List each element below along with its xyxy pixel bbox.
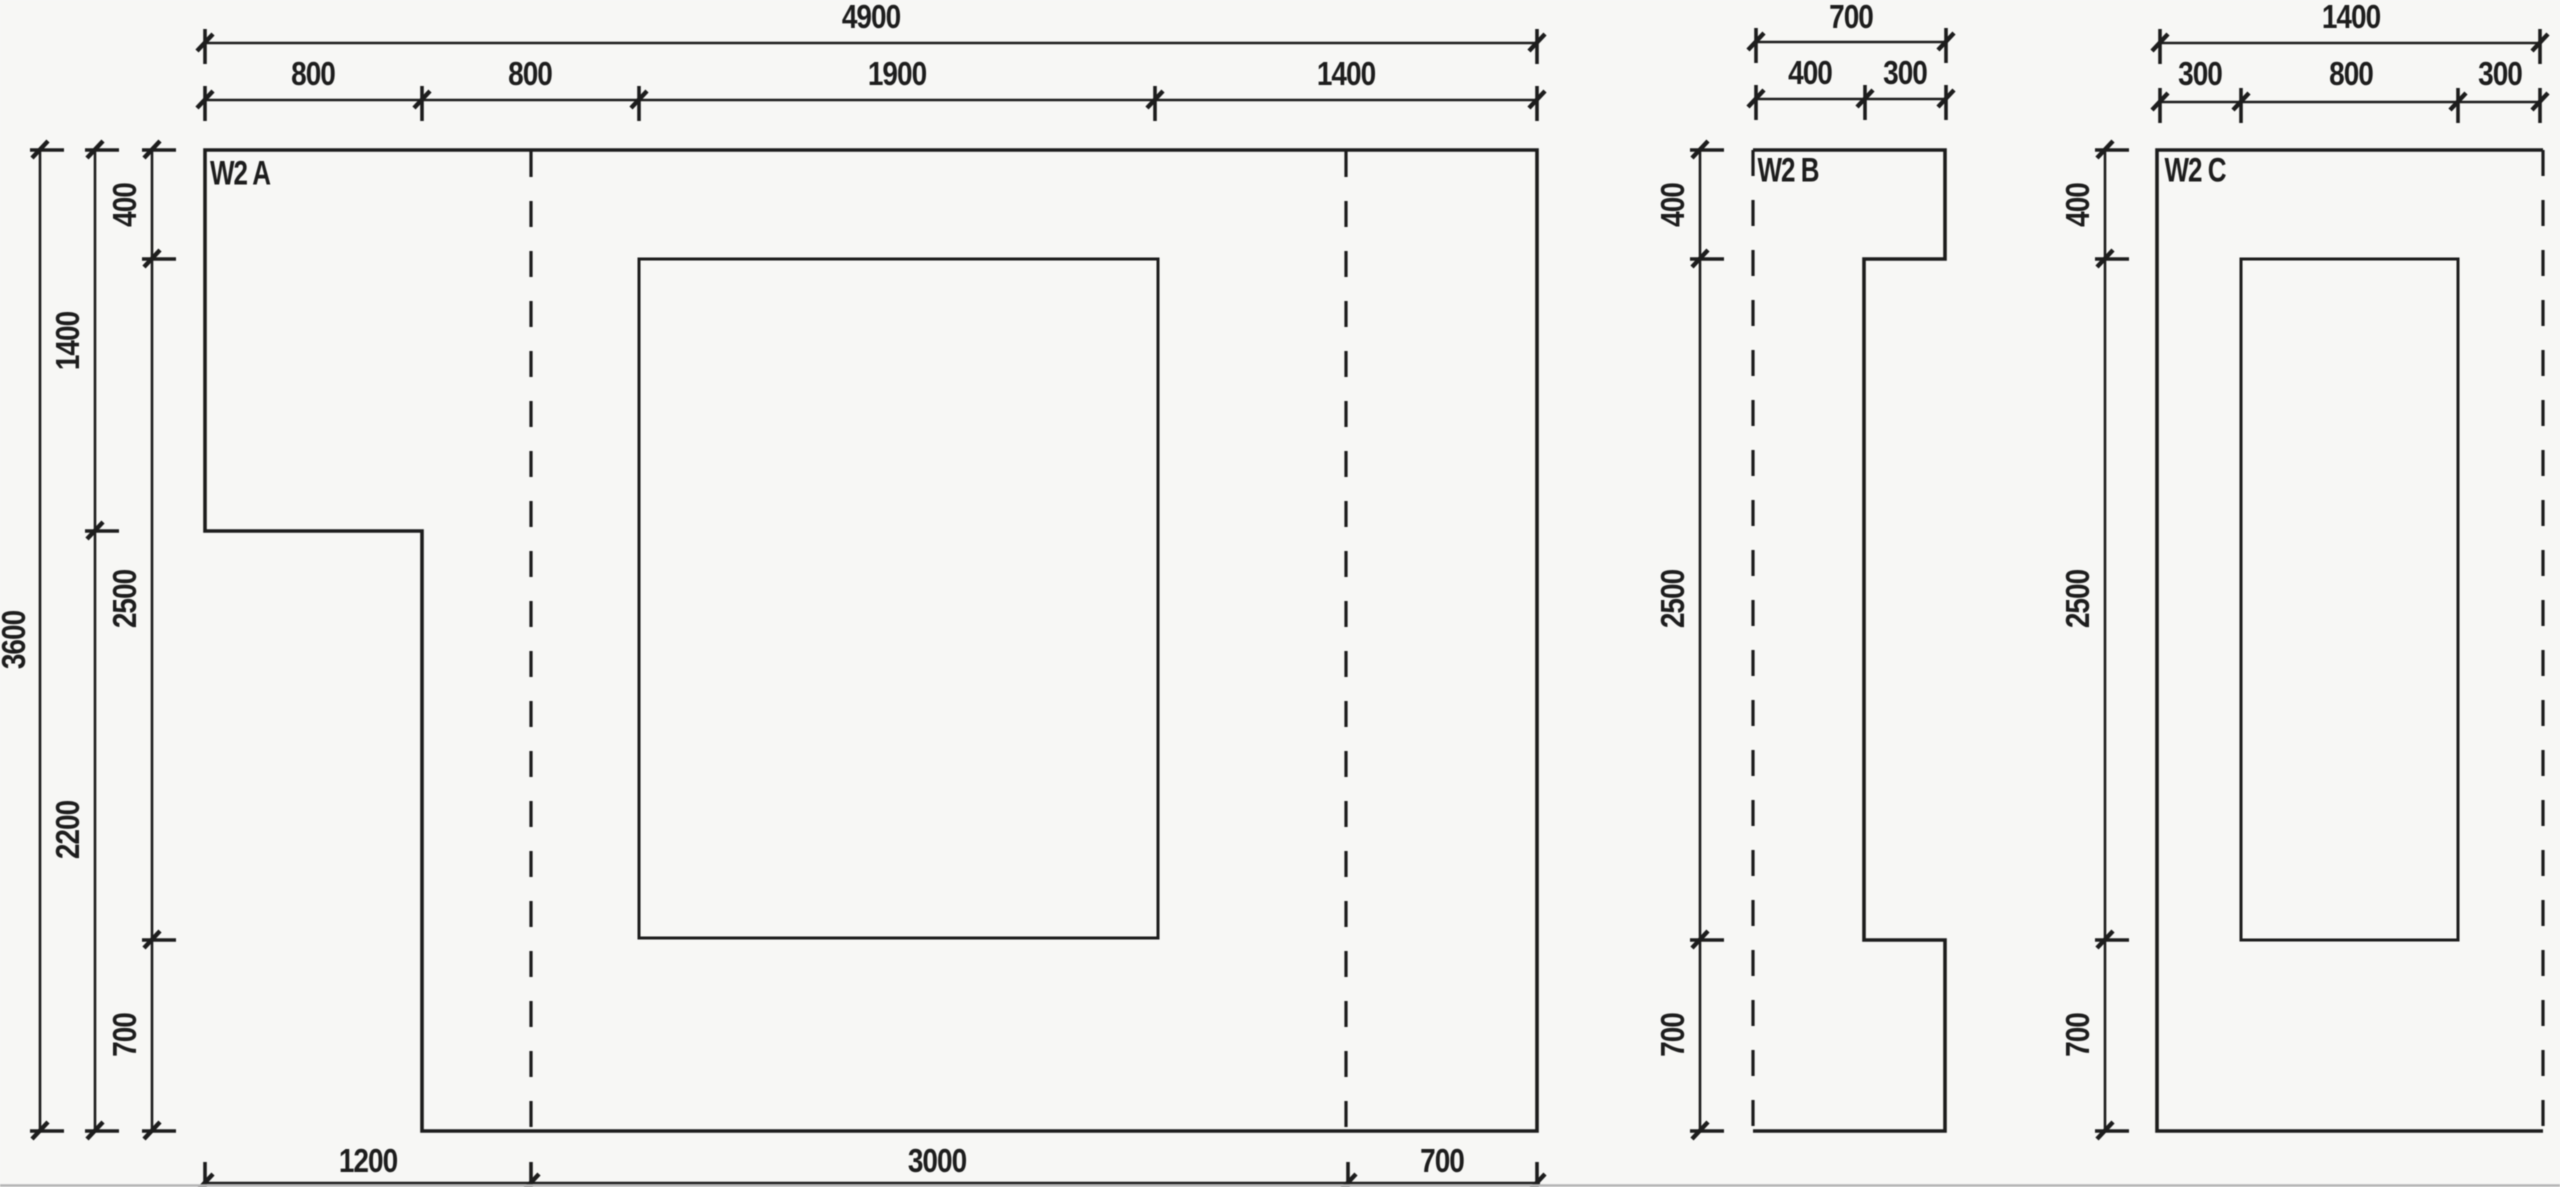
svg-text:3000: 3000 <box>908 1143 966 1180</box>
svg-text:700: 700 <box>1829 0 1873 35</box>
svg-text:400: 400 <box>2060 183 2097 227</box>
svg-text:2500: 2500 <box>107 570 144 628</box>
svg-text:2500: 2500 <box>2060 570 2097 628</box>
svg-text:1200: 1200 <box>339 1143 397 1180</box>
svg-text:1400: 1400 <box>2322 0 2380 35</box>
svg-text:W2 C: W2 C <box>2165 153 2226 190</box>
svg-text:800: 800 <box>291 56 335 93</box>
svg-text:700: 700 <box>2060 1013 2097 1057</box>
svg-text:W2 B: W2 B <box>1758 153 1819 190</box>
svg-text:1400: 1400 <box>50 312 87 370</box>
svg-text:300: 300 <box>2478 56 2522 93</box>
svg-text:800: 800 <box>2329 56 2373 93</box>
svg-text:4900: 4900 <box>842 0 900 35</box>
svg-text:700: 700 <box>1655 1013 1692 1057</box>
svg-text:700: 700 <box>1420 1143 1464 1180</box>
svg-text:800: 800 <box>508 56 552 93</box>
svg-text:1900: 1900 <box>868 56 926 93</box>
svg-text:2500: 2500 <box>1655 570 1692 628</box>
svg-text:400: 400 <box>1655 183 1692 227</box>
svg-text:700: 700 <box>107 1013 144 1057</box>
svg-text:300: 300 <box>1883 55 1927 92</box>
svg-text:3600: 3600 <box>0 611 32 669</box>
svg-text:400: 400 <box>107 183 144 227</box>
svg-text:1400: 1400 <box>1317 56 1375 93</box>
svg-text:300: 300 <box>2178 56 2222 93</box>
svg-text:2200: 2200 <box>50 801 87 859</box>
svg-text:400: 400 <box>1788 55 1832 92</box>
svg-text:W2 A: W2 A <box>210 156 270 193</box>
